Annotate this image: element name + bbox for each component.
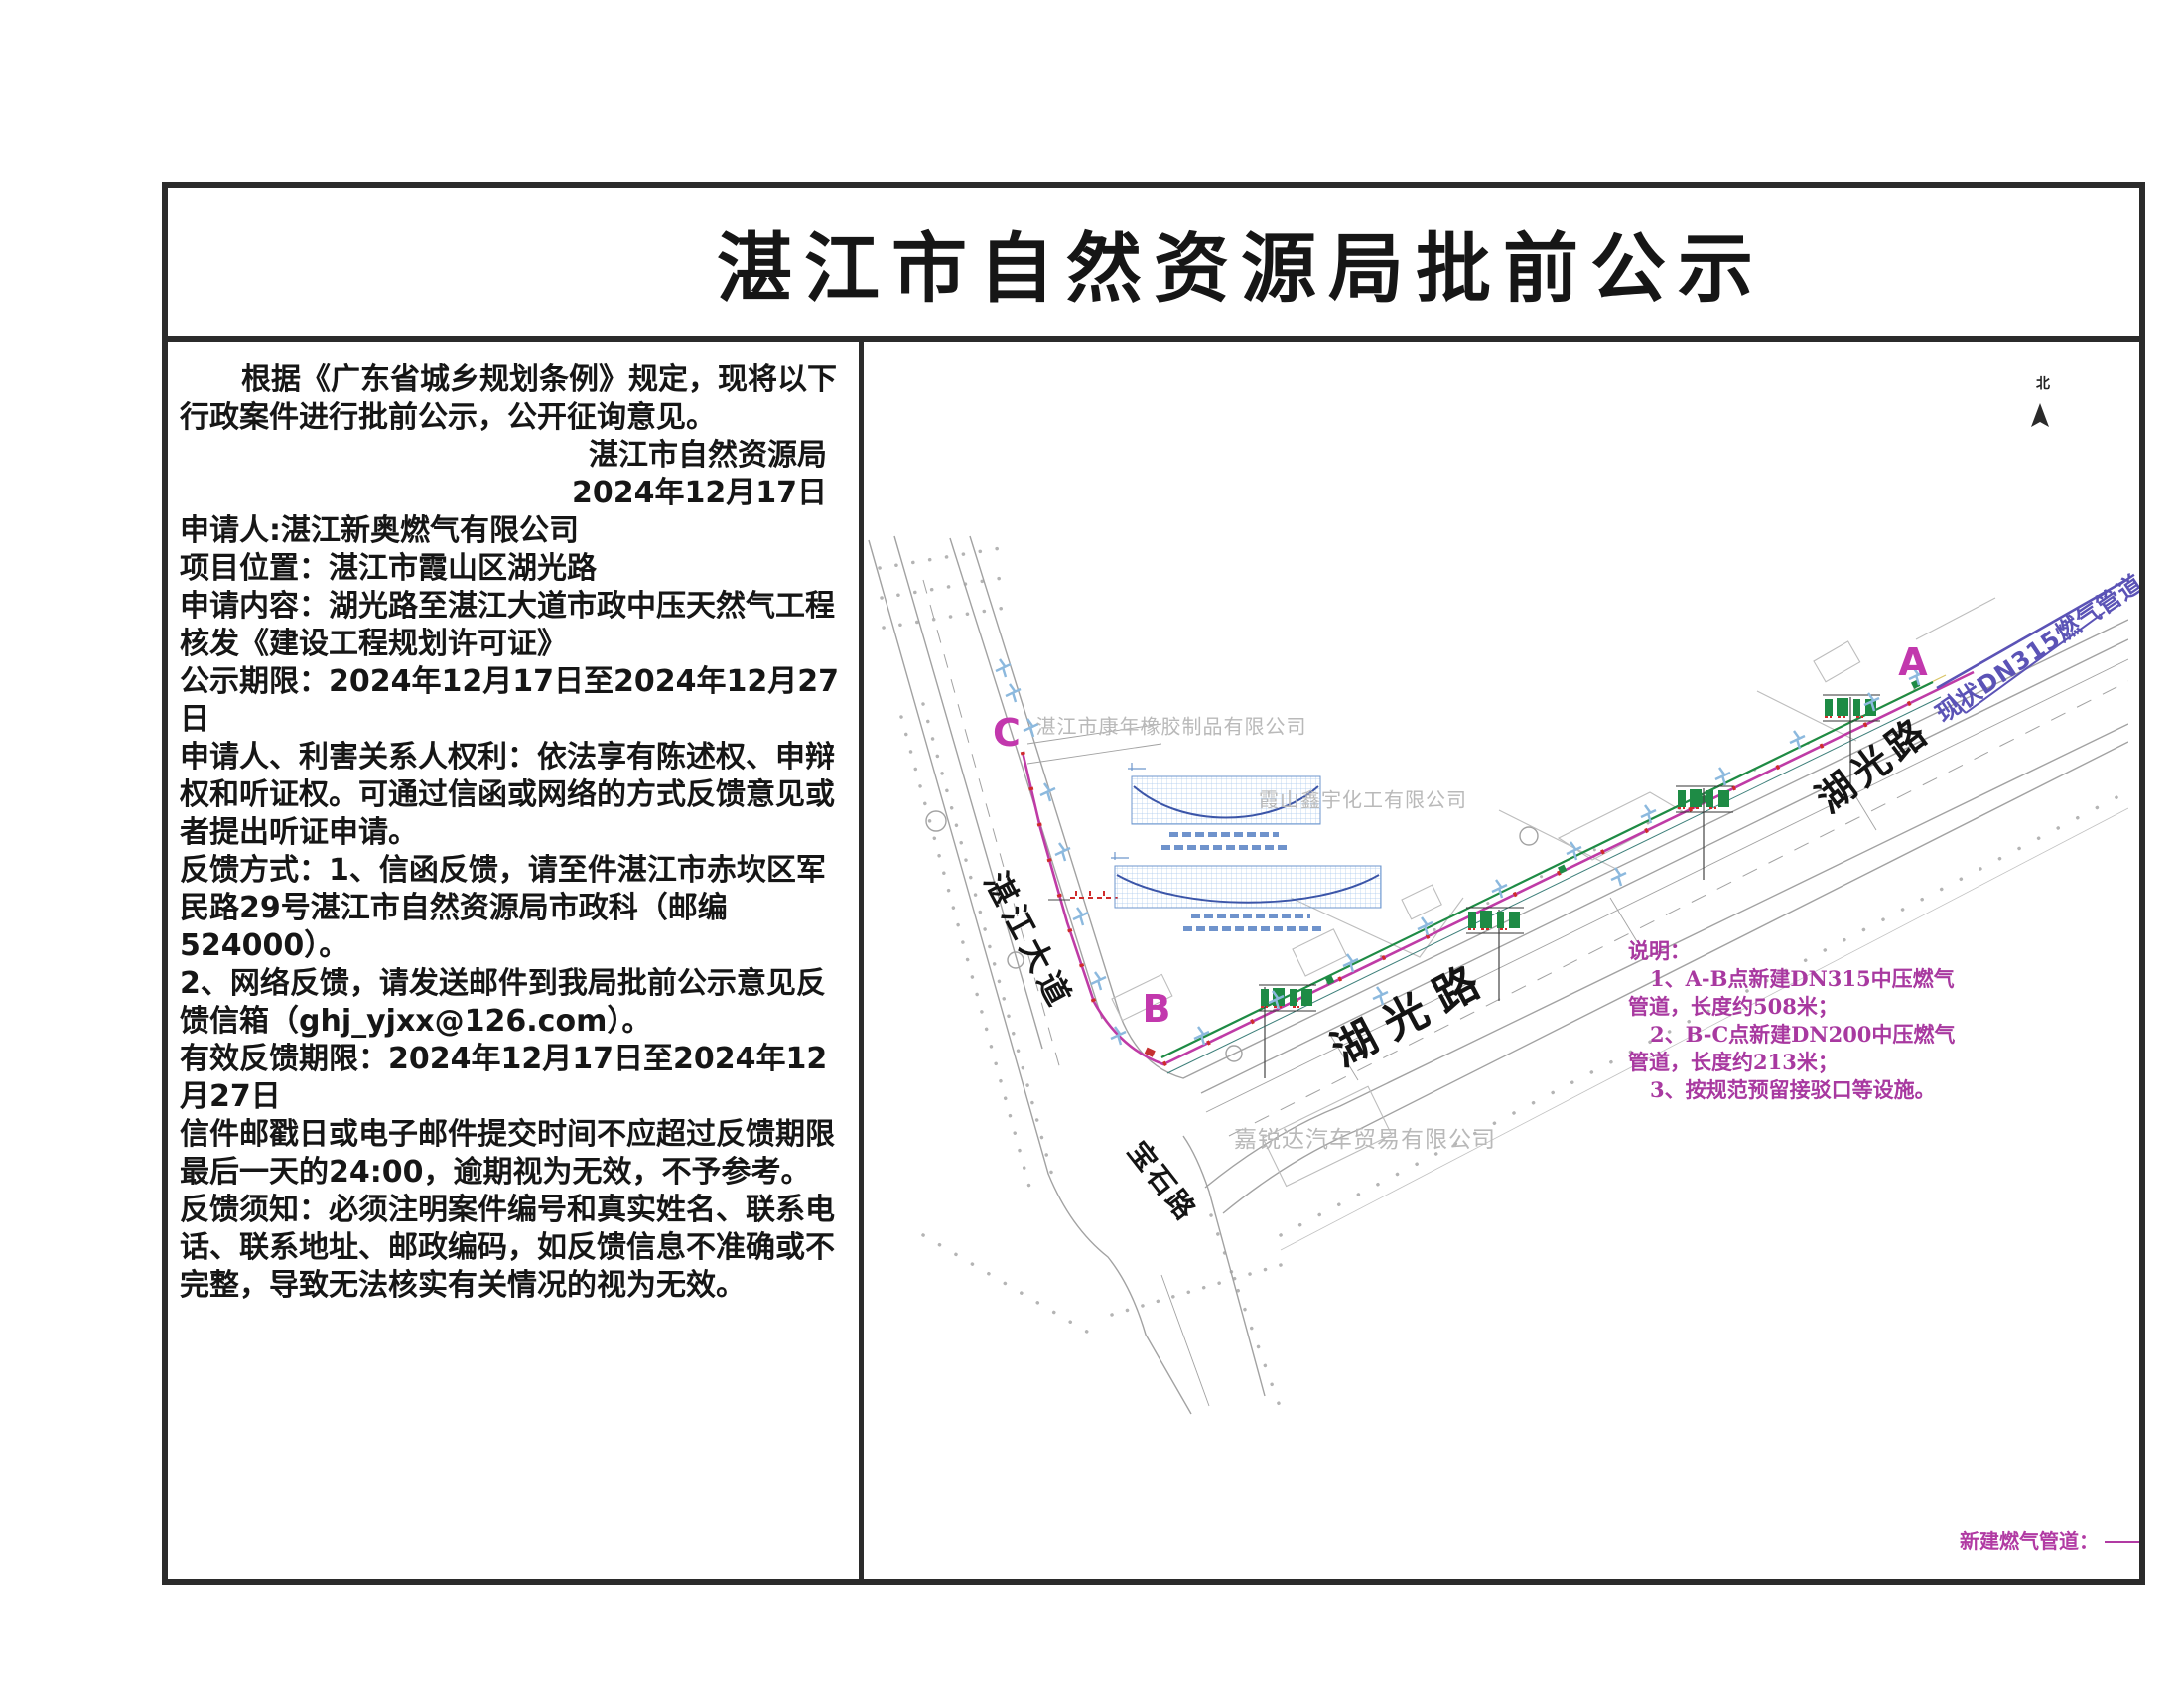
notes-line3: 2、B-C点新建DN200中压燃气 (1628, 1021, 1956, 1049)
notes-line1: 1、A-B点新建DN315中压燃气 (1628, 965, 1956, 993)
profile1-caption2 (1161, 845, 1289, 850)
notice-feedback-online: 2、网络反馈，请发送邮件到我局批前公示意见反馈信箱（ghj_yjxx@126.c… (180, 965, 843, 1041)
page-title: 湛江市自然资源局批前公示 (717, 208, 1765, 317)
profile2-caption (1191, 914, 1310, 918)
profile1-caption (1169, 832, 1279, 837)
company-label-xinyu: 霞山鑫宇化工有限公司 (1259, 784, 1467, 813)
notice-content: 申请内容：湖光路至湛江大道市政中压天然气工程 (180, 588, 843, 626)
point-c-label: C (993, 711, 1021, 755)
notes-line5: 3、按规范预留接驳口等设施。 (1628, 1076, 1956, 1104)
title-bar: 湛江市自然资源局批前公示 (168, 188, 2139, 342)
notice-content2: 核发《建设工程规划许可证》 (180, 626, 843, 663)
notice-feedback-mail: 反馈方式：1、信函反馈，请至件湛江市赤坎区军民路29号湛江市自然资源局市政科（邮… (180, 852, 843, 965)
notice-rights: 申请人、利害关系人权利：依法享有陈述权、申辩权和听证权。可通过信函或网络的方式反… (180, 739, 843, 852)
notes-line4: 管道，长度约213米； (1628, 1049, 1956, 1076)
map-legend: 新建燃气管道： (1960, 1525, 2139, 1554)
notes-line2: 管道，长度约508米； (1628, 993, 1956, 1021)
notice-intro: 根据《广东省城乡规划条例》规定，现将以下行政案件进行批前公示，公开征询意见。 (180, 361, 843, 437)
point-a-label: A (1898, 640, 1927, 684)
notice-location: 项目位置：湛江市霞山区湖光路 (180, 550, 843, 588)
legend-new-pipeline-swatch (2105, 1541, 2139, 1543)
notice-applicant: 申请人:湛江新奥燃气有限公司 (180, 512, 843, 550)
site-plan-map: 北 A B C 湛江大道 湖光路 湖光路 宝石路 湛江市康年橡胶制品有限公司 霞… (864, 342, 2139, 1579)
north-arrow-icon (2031, 403, 2049, 427)
notice-deadline-note: 信件邮戳日或电子邮件提交时间不应超过反馈期限最后一天的24:00，逾期视为无效，… (180, 1116, 843, 1192)
map-notes: 说明： 1、A-B点新建DN315中压燃气 管道，长度约508米； 2、B-C点… (1628, 937, 1956, 1104)
legend-new-pipeline-label: 新建燃气管道： (1960, 1529, 2099, 1553)
company-label-jiaruida: 嘉锐达汽车贸易有限公司 (1234, 1120, 1496, 1154)
notice-valid-period: 有效反馈期限：2024年12月17日至2024年12月27日 (180, 1041, 843, 1116)
notice-agency: 湛江市自然资源局 (180, 437, 843, 475)
crossing-profile-2 (1111, 852, 1381, 908)
notice-requirement: 反馈须知：必须注明案件编号和真实姓名、联系电话、联系地址、邮政编码，如反馈信息不… (180, 1192, 843, 1305)
north-label: 北 (2023, 377, 2063, 391)
notice-text-panel: 根据《广东省城乡规划条例》规定，现将以下行政案件进行批前公示，公开征询意见。 湛… (168, 342, 864, 1579)
north-indicator: 北 (2023, 377, 2063, 391)
notice-period: 公示期限：2024年12月17日至2024年12月27日 (180, 663, 843, 739)
company-label-kangnian: 湛江市康年橡胶制品有限公司 (1036, 711, 1307, 740)
point-b-label: B (1143, 987, 1171, 1031)
profile2-caption2 (1183, 926, 1322, 931)
notice-sheet: 湛江市自然资源局批前公示 根据《广东省城乡规划条例》规定，现将以下行政案件进行批… (162, 182, 2145, 1585)
notes-title: 说明： (1628, 937, 1956, 965)
notice-date: 2024年12月17日 (180, 475, 843, 512)
